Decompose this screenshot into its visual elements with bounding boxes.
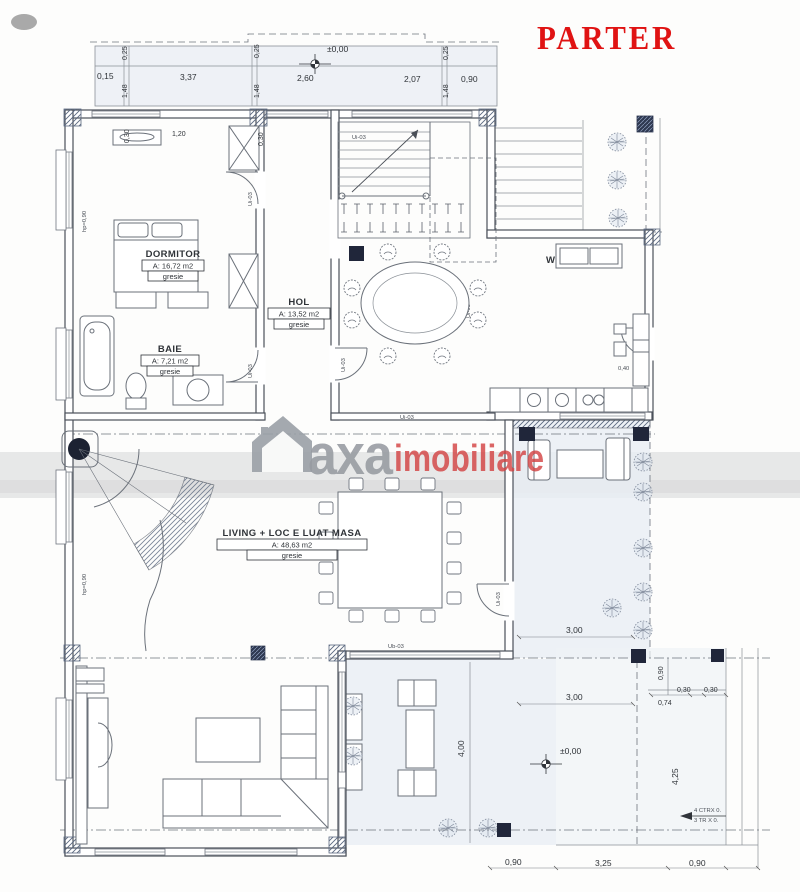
dim-top-207: 2,07 (404, 74, 421, 84)
door-label: Ui-03 (496, 592, 502, 606)
scan-artifact (11, 14, 37, 30)
shrub-icon (634, 453, 652, 471)
outdoor-chair (606, 438, 630, 480)
chair (447, 502, 461, 514)
door-label: Ui-03 (352, 135, 366, 141)
lounge-table (406, 710, 434, 768)
room-area-baie: A: 7,21 m2 (152, 357, 188, 366)
dim-030-bed-b: 0,30 (258, 132, 265, 146)
shrub-icon (634, 539, 652, 557)
dim-top-025a: 0,25 (122, 46, 129, 60)
dim-300-b: 3,00 (566, 692, 583, 702)
dim-top-148a: 1,48 (122, 84, 129, 98)
column-hatched (637, 116, 653, 132)
shrub-icon (634, 583, 652, 601)
dim-074: 0,74 (658, 700, 672, 707)
dim-top-015: 0,15 (97, 71, 114, 81)
shrub-icon (634, 483, 652, 501)
floor-plan-canvas: 0,15 0,25 1,48 3,37 0,25 1,48 2,60 ±0,00… (0, 0, 800, 892)
bedroom-bench (168, 292, 208, 308)
lounge-chair (398, 680, 436, 706)
dim-040: 0,40 (618, 366, 629, 372)
dim-top-025b: 0,25 (254, 44, 261, 58)
door-label: Ui-03 (248, 192, 254, 206)
shrub-icon (603, 599, 621, 617)
room-area-living: A: 48,63 m2 (272, 541, 312, 550)
shrub-icon (344, 747, 362, 765)
shrub-icon (439, 819, 457, 837)
room-area-dormitor: A: 16,72 m2 (153, 262, 193, 271)
stair-note-2: 3 TR X 0. (694, 818, 719, 824)
room-finish-hol: gresie (289, 320, 309, 329)
chair (447, 592, 461, 604)
dining-chair (380, 348, 396, 364)
fridge (633, 314, 649, 386)
chair (385, 610, 399, 622)
bedroom-bench (116, 292, 156, 308)
dining-chair (344, 312, 360, 328)
dim-120: 1,20 (172, 131, 186, 138)
watermark-text-gray: axa (308, 423, 394, 487)
dining-table (361, 262, 469, 344)
dining-chair (470, 312, 486, 328)
sill-height-label: hp=0,90 (82, 211, 88, 232)
room-name-living: LIVING + LOC E LUAT MASA (223, 528, 362, 539)
dim-090-r: 0,90 (658, 666, 665, 680)
floor-plan-page: 0,15 0,25 1,48 3,37 0,25 1,48 2,60 ±0,00… (0, 0, 800, 892)
room-area-hol: A: 13,52 m2 (279, 310, 319, 319)
chair (319, 592, 333, 604)
shrub-icon (634, 621, 652, 639)
dim-030-bed-a: 0,30 (124, 129, 131, 143)
dim-090-br: 0,90 (689, 858, 706, 868)
stair-note-1: 4 CTRX 0. (694, 808, 721, 814)
chair (319, 502, 333, 514)
coffee-table (196, 718, 260, 762)
dim-top-260: 2,60 (297, 73, 314, 83)
dim-top-025c: 0,25 (443, 46, 450, 60)
dining-chair (380, 244, 396, 260)
door-label: Ui-03 (400, 415, 414, 421)
shrub-icon (479, 819, 497, 837)
toilet (126, 373, 146, 399)
dim-425: 4,25 (670, 768, 680, 785)
outdoor-table (557, 450, 603, 478)
room-name-hol: HOL (288, 297, 309, 308)
dim-top-148c: 1,48 (443, 84, 450, 98)
shrub-icon (608, 171, 626, 189)
door-label: Ui-03 (248, 364, 254, 378)
room-name-baie: BAIE (158, 344, 182, 355)
room-finish-baie: gresie (160, 367, 180, 376)
chair (421, 610, 435, 622)
dim-300-a: 3,00 (566, 625, 583, 635)
level-zero-terrace: ±0,00 (560, 746, 581, 756)
dim-top-148b: 1,48 (254, 84, 261, 98)
room-finish-living: gresie (282, 551, 302, 560)
dining-chair (434, 244, 450, 260)
chair (447, 562, 461, 574)
chair (447, 532, 461, 544)
shrub-icon (344, 697, 362, 715)
dim-400: 4,00 (456, 740, 466, 757)
plan-title: PARTER (537, 20, 677, 57)
room-finish-dormitor: gresie (163, 272, 183, 281)
dim-030-a: 0,30 (677, 687, 691, 694)
dim-090-bl: 0,90 (505, 857, 522, 867)
dim-top-337: 3,37 (180, 72, 197, 82)
door-label-ub: Ub-03 (388, 644, 404, 650)
south-terrace: 4,00 (344, 659, 556, 845)
dining-chair (344, 280, 360, 296)
room-name-dormitor: DORMITOR (146, 249, 201, 260)
chair (349, 610, 363, 622)
dining-chair (434, 348, 450, 364)
dining-chair (470, 280, 486, 296)
watermark-text-red: imobiliare (394, 438, 544, 480)
sill-height-label: hp=0,90 (82, 574, 88, 595)
shrub-icon (609, 209, 627, 227)
dim-325: 3,25 (595, 858, 612, 868)
chair (319, 562, 333, 574)
dim-top-090: 0,90 (461, 74, 478, 84)
tv (88, 698, 108, 808)
kitchen-mark: W (546, 255, 555, 266)
level-zero-top: ±0,00 (327, 44, 348, 54)
door-label: Ui-03 (341, 358, 347, 372)
lounge-chair (398, 770, 436, 796)
shrub-icon (608, 133, 626, 151)
dim-030-b: 0,30 (704, 687, 718, 694)
